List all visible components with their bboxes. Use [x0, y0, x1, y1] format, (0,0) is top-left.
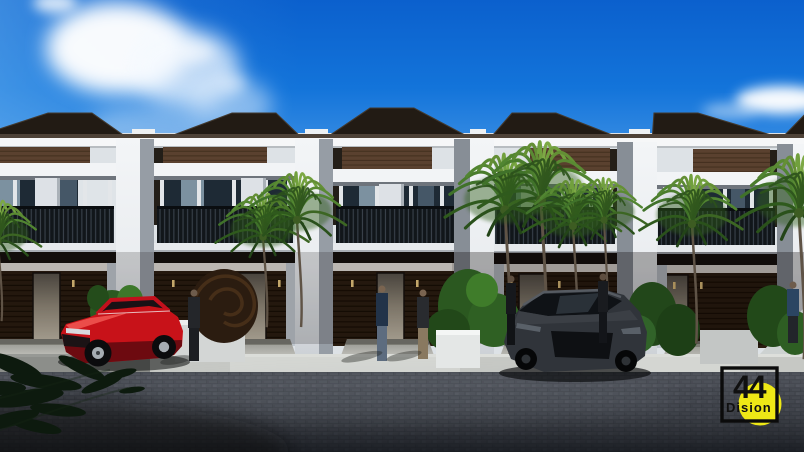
- svg-text:Dision: Dision: [726, 400, 772, 415]
